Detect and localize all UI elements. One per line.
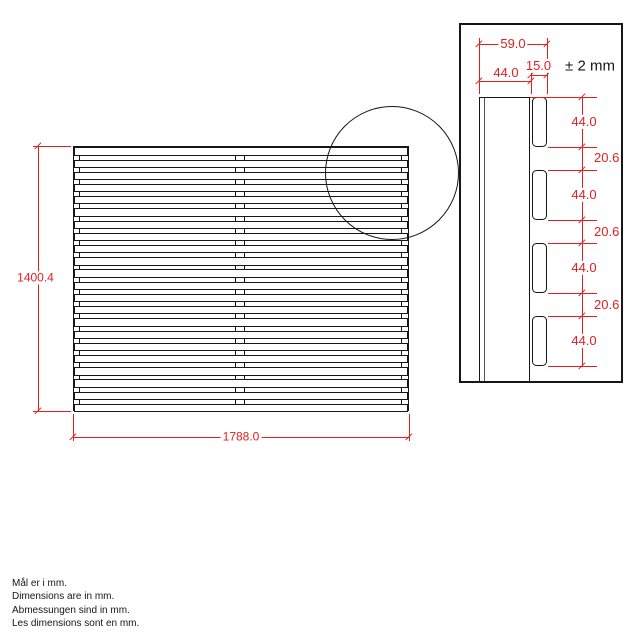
horizontal-slat [74,379,409,387]
units-notes: Mål er i mm. Dimensions are in mm. Abmes… [12,577,139,631]
height-ext-line-top [33,146,71,147]
detail-slat-end [532,243,548,293]
detail-slat-dim-label: 15.0 [524,59,553,73]
horizontal-slat [74,331,409,339]
note-line: Abmessungen sind in mm. [12,604,139,617]
detail-side-dim-label: 44.0 [569,115,598,129]
height-dim-label: 1400.4 [15,271,56,284]
detail-side-dim-label: 20.6 [592,224,621,238]
note-line: Mål er i mm. [12,577,139,590]
horizontal-slat [74,318,409,326]
detail-slat-end [532,97,548,147]
horizontal-slat [74,257,409,265]
horizontal-slat [74,294,409,302]
detail-boundary-line [548,147,597,148]
detail-slat-end [532,170,548,220]
detail-side-dim-line [582,97,583,366]
horizontal-slat [74,367,409,375]
horizontal-slat [74,245,409,253]
detail-rail-section [479,97,530,381]
detail-side-dim-label: 20.6 [592,151,621,165]
detail-boundary-line [548,316,597,317]
detail-ext-riser-left [479,38,480,94]
horizontal-slat [74,355,409,363]
detail-boundary-line [548,366,597,367]
detail-boundary-line [548,220,597,221]
horizontal-slat [74,269,409,277]
detail-boundary-line [548,293,597,294]
detail-rail-dim-label: 44.0 [491,66,520,80]
horizontal-slat [74,306,409,314]
detail-side-dim-label: 20.6 [592,297,621,311]
detail-boundary-line [548,243,597,244]
technical-drawing-canvas: 1400.4 1788.0 59.0 44.0 15.0 ± 2 mm 44.0… [0,0,640,640]
detail-side-dim-label: 44.0 [569,334,598,348]
note-line: Dimensions are in mm. [12,590,139,603]
note-line: Les dimensions sont en mm. [12,617,139,630]
detail-boundary-line [530,97,597,98]
detail-rail-inner-edge [484,98,485,381]
detail-side-dim-label: 44.0 [569,261,598,275]
detail-rail-dim-line [479,81,532,82]
horizontal-slat [74,404,409,412]
horizontal-slat [74,233,409,241]
detail-boundary-line [548,170,597,171]
horizontal-slat [74,282,409,290]
horizontal-slat [74,392,409,400]
detail-side-dim-label: 44.0 [569,188,598,202]
detail-overall-dim-label: 59.0 [498,37,527,51]
width-dim-label: 1788.0 [221,430,262,443]
detail-zoom-circle [325,106,459,240]
horizontal-slat [74,343,409,351]
tolerance-label: ± 2 mm [565,58,615,75]
detail-slat-end [532,316,548,366]
